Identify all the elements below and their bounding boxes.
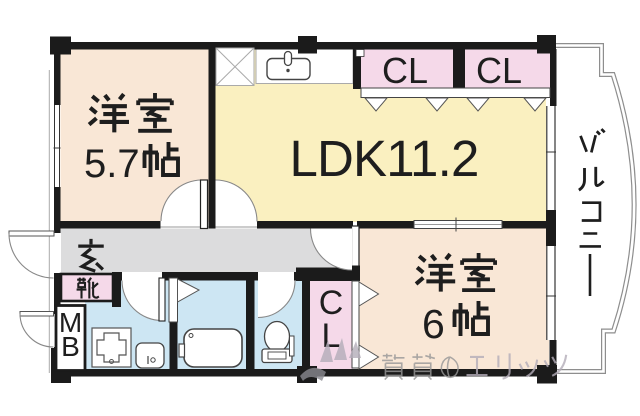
svg-text:CL: CL (382, 50, 428, 91)
svg-text:B: B (61, 331, 80, 362)
svg-text:6: 6 (422, 301, 445, 347)
svg-text:L: L (322, 317, 341, 355)
svg-text:5.7: 5.7 (84, 142, 140, 186)
svg-text:LDK11.2: LDK11.2 (289, 130, 478, 187)
svg-text:CL: CL (476, 50, 522, 91)
